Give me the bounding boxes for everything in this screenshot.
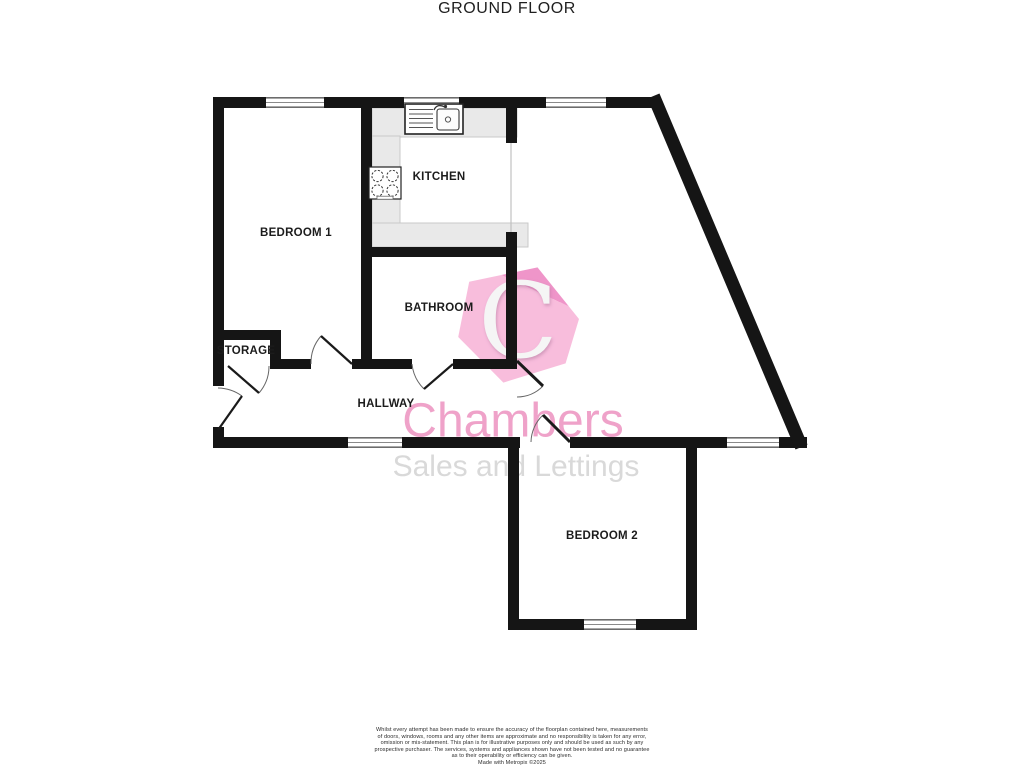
disclaimer-line: as to their operability or efficiency ca…	[0, 753, 1024, 760]
door-entrance	[218, 388, 242, 430]
room-label-bedroom-1: BEDROOM 1	[260, 227, 332, 239]
disclaimer-line: of doors, windows, rooms and any other i…	[0, 734, 1024, 741]
room-label-bedroom-2: BEDROOM 2	[566, 530, 638, 542]
cooker-hob-icon	[369, 167, 401, 199]
room-label-kitchen: KITCHEN	[413, 171, 466, 183]
door-bedroom1	[311, 336, 352, 364]
room-label-bathroom: BATHROOM	[405, 302, 474, 314]
disclaimer-text: Whilst every attempt has been made to en…	[0, 727, 1024, 767]
window-bedroom2	[584, 620, 636, 630]
floorplan-page: GROUND FLOOR C Chambers Sales and Lettin…	[0, 0, 1024, 768]
door-bathroom	[412, 364, 453, 389]
diagonal-wall	[656, 102, 799, 441]
page-title: GROUND FLOOR	[438, 0, 576, 18]
disclaimer-line: prospective purchaser. The services, sys…	[0, 747, 1024, 754]
floorplan-drawing	[0, 0, 1024, 768]
room-label-hallway: HALLWAY	[358, 398, 415, 410]
door-bedroom2	[531, 415, 570, 442]
window-lounge-bottom	[727, 438, 779, 448]
door-storage	[228, 366, 269, 393]
room-label-storage: STORAGE	[217, 345, 275, 357]
disclaimer-line: omission or mis-statement. This plan is …	[0, 740, 1024, 747]
windows	[266, 98, 779, 630]
disclaimer-credit: Made with Metropix ©2025	[0, 760, 1024, 767]
window-hallway	[348, 438, 402, 448]
disclaimer-line: Whilst every attempt has been made to en…	[0, 727, 1024, 734]
window-lounge-top	[546, 98, 606, 108]
window-bedroom1	[266, 98, 324, 108]
kitchen-sink-icon	[405, 104, 463, 134]
door-hall-lounge	[517, 361, 543, 397]
